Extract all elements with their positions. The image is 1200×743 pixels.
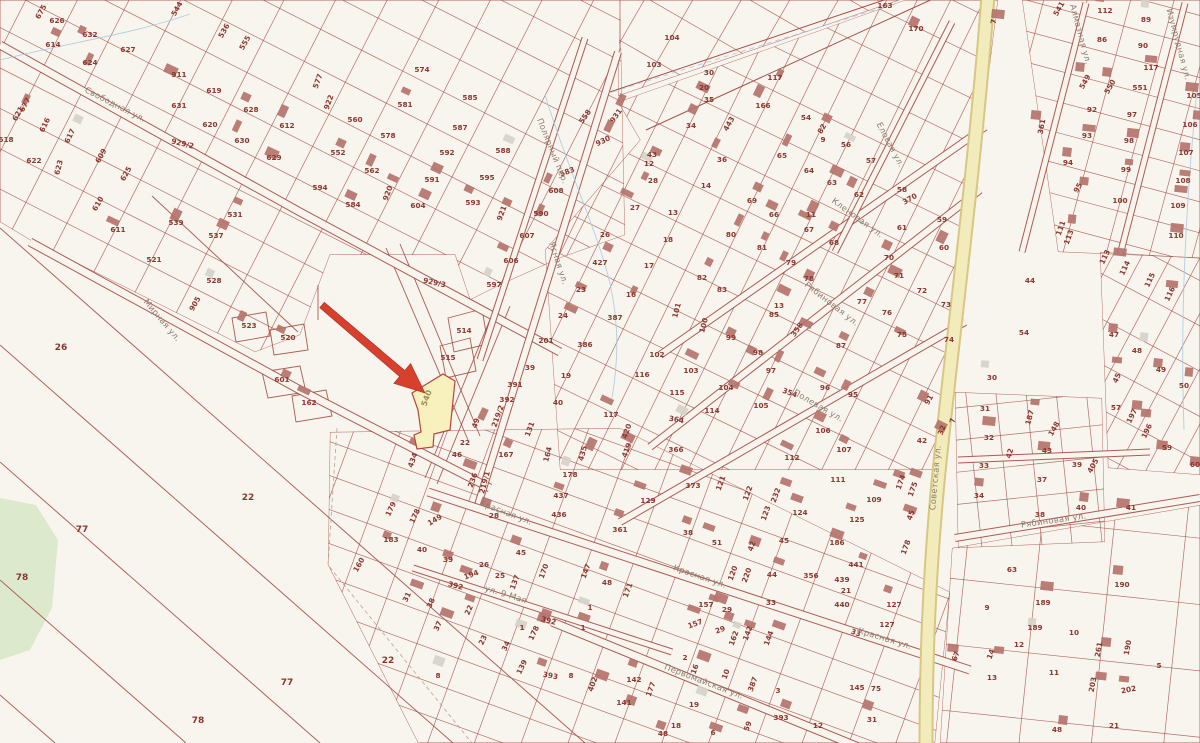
parcel-label: 201 (538, 336, 553, 345)
parcel-label: 551 (1132, 83, 1147, 92)
parcel-label: 27 (630, 203, 640, 212)
rural-parcel-label: 77 (281, 678, 294, 688)
parcel-label: 13 (987, 673, 997, 682)
parcel-label: 366 (668, 445, 683, 454)
parcel-label: 552 (330, 148, 345, 157)
parcel-label: 46 (452, 450, 462, 459)
parcel-label: 520 (280, 333, 295, 342)
parcel-label: 601 (274, 375, 289, 384)
parcel-label: 108 (1175, 176, 1190, 185)
parcel-label: 62 (854, 190, 864, 199)
parcel-label: 75 (871, 684, 881, 693)
parcel-label: 604 (410, 201, 425, 210)
parcel-label: 64 (804, 166, 814, 175)
parcel-label: 98 (1124, 136, 1134, 145)
parcel-label: 167 (498, 450, 513, 459)
parcel-label: 115 (669, 388, 684, 397)
parcel-label: 361 (612, 525, 627, 534)
parcel-label: 393 (773, 713, 788, 722)
parcel-label: 112 (784, 453, 799, 462)
parcel-label: 19 (561, 371, 571, 380)
parcel-label: 99 (1121, 165, 1131, 174)
parcel-label: 40 (553, 398, 563, 407)
parcel-label: 20 (699, 83, 709, 92)
parcel-label: 70 (884, 253, 894, 262)
parcel-label: 50 (1179, 381, 1189, 390)
parcel-label: 628 (243, 105, 258, 114)
parcel-label: 539 (168, 218, 183, 227)
parcel-label: 440 (834, 600, 849, 609)
parcel-label: 107 (836, 445, 851, 454)
parcel-label: 124 (792, 508, 807, 517)
parcel-label: 608 (548, 186, 563, 195)
parcel-label: 170 (908, 24, 923, 33)
parcel-label: 141 (616, 698, 631, 707)
parcel-label: 56 (841, 140, 851, 149)
parcel-label: 523 (241, 321, 256, 330)
parcel-label: 71 (894, 271, 904, 280)
parcel-label: 13 (774, 301, 784, 310)
parcel-label: 13 (668, 208, 678, 217)
parcel-label: 515 (440, 353, 455, 362)
parcel-label: 98 (753, 348, 763, 357)
parcel-label: 11 (806, 210, 816, 219)
parcel-label: 127 (879, 620, 894, 629)
parcel-label: 51 (712, 538, 722, 547)
parcel-label: 80 (726, 230, 736, 239)
parcel-label: 592 (439, 148, 454, 157)
parcel-label: 31 (980, 404, 990, 413)
parcel-label: 178 (562, 470, 577, 479)
parcel-label: 190 (1114, 580, 1129, 589)
parcel-label: 439 (834, 575, 849, 584)
parcel-label: 66 (769, 210, 779, 219)
parcel-label: 96 (820, 383, 830, 392)
parcel-label: 68 (829, 238, 839, 247)
parcel-label: 619 (206, 86, 221, 95)
parcel-label: 145 (849, 683, 864, 692)
parcel-label: 186 (829, 538, 844, 547)
parcel-label: 537 (208, 231, 223, 240)
parcel-label: 620 (202, 120, 217, 129)
parcel-label: 514 (456, 326, 471, 335)
parcel-label: 392 (499, 395, 514, 404)
parcel-label: 6 (710, 728, 715, 737)
parcel-label: 387 (607, 313, 622, 322)
parcel-label: 110 (1168, 231, 1183, 240)
parcel-label: 26 (600, 230, 610, 239)
parcel-label: 18 (663, 235, 673, 244)
parcel-label: 630 (234, 136, 249, 145)
parcel-label: 9 (984, 603, 989, 612)
parcel-label: 1 (587, 603, 592, 612)
parcel-label: 588 (495, 146, 510, 155)
parcel-label: 48 (1052, 725, 1062, 734)
parcel-label: 83 (717, 285, 727, 294)
parcel-label: 19 (689, 700, 699, 709)
rural-parcel-label: 22 (242, 493, 255, 503)
parcel-label: 73 (941, 300, 951, 309)
parcel-label: 89 (1141, 15, 1151, 24)
parcel-label: 591 (424, 175, 439, 184)
parcel-label: 595 (479, 173, 494, 182)
parcel-label: 21 (1109, 721, 1119, 730)
rural-parcel-label: 22 (382, 656, 395, 666)
parcel-label: 39 (443, 555, 453, 564)
rural-parcel-label: 78 (16, 573, 29, 583)
parcel-label: 622 (26, 156, 41, 165)
parcel-label: 574 (414, 65, 429, 74)
parcel-label: 127 (886, 600, 901, 609)
parcel-label: 21 (841, 586, 851, 595)
parcel-label: 562 (364, 166, 379, 175)
parcel-label: 34 (686, 121, 696, 130)
parcel-label: 528 (206, 276, 221, 285)
parcel-label: 437 (553, 491, 568, 500)
parcel-label: 44 (767, 570, 777, 579)
parcel-label: 25 (495, 571, 505, 580)
parcel-label: 3 (775, 686, 780, 695)
parcel-label: 1 (519, 623, 524, 632)
parcel-label: 597 (486, 280, 501, 289)
parcel-label: 74 (944, 335, 954, 344)
parcel-label: 117 (603, 410, 618, 419)
parcel-label: 105 (1186, 91, 1200, 100)
parcel-label: 32 (984, 433, 994, 442)
parcel-label: 531 (227, 210, 242, 219)
parcel-label: 30 (704, 68, 714, 77)
parcel-label: 82 (697, 273, 707, 282)
parcel-label: 79 (786, 258, 796, 267)
parcel-label: 594 (312, 183, 327, 192)
parcel-label: 76 (882, 308, 892, 317)
parcel-label: 49 (1156, 365, 1166, 374)
parcel-label: 59 (937, 215, 947, 224)
parcel-label: 37 (1037, 475, 1047, 484)
parcel-label: 166 (755, 101, 770, 110)
parcel-label: 106 (815, 426, 830, 435)
parcel-label: 31 (867, 715, 877, 724)
rural-parcel-label: 78 (192, 716, 205, 726)
parcel-label: 116 (634, 370, 649, 379)
parcel-label: 26 (479, 560, 489, 569)
parcel-label: 107 (1178, 148, 1193, 157)
parcel-label: 87 (836, 341, 846, 350)
parcel-label: 95 (848, 390, 858, 399)
parcel-label: 163 (877, 1, 892, 10)
parcel-label: 75 (897, 330, 907, 339)
parcel-label: 189 (1035, 598, 1050, 607)
parcel-label: 106 (1182, 120, 1197, 129)
parcel-label: 41 (1126, 503, 1136, 512)
parcel-label: 48 (658, 729, 668, 738)
parcel-label: 77 (857, 297, 867, 306)
parcel-label: 10 (1069, 628, 1079, 637)
parcel-label: 102 (649, 350, 664, 359)
parcel-label: 104 (664, 33, 679, 42)
parcel-label: 12 (644, 159, 654, 168)
parcel-label: 67 (804, 225, 814, 234)
parcel-label: 42 (917, 436, 927, 445)
parcel-label: 69 (747, 196, 757, 205)
parcel-label: 97 (1127, 110, 1137, 119)
parcel-label: 35 (704, 95, 714, 104)
parcel-label: 33 (766, 598, 776, 607)
parcel-label: 109 (1170, 201, 1185, 210)
parcel-label: 521 (146, 255, 161, 264)
parcel-label: 65 (777, 151, 787, 160)
parcel-label: 373 (685, 481, 700, 490)
parcel-label: 58 (897, 185, 907, 194)
parcel-label: 391 (507, 380, 522, 389)
parcel-label: 29 (722, 605, 732, 614)
parcel-label: 114 (704, 406, 719, 415)
parcel-label: 90 (1138, 41, 1148, 50)
parcel-label: 44 (1025, 276, 1035, 285)
parcel-label: 18 (671, 721, 681, 730)
parcel-label: 2 (682, 653, 687, 662)
parcel-label: 22 (460, 438, 470, 447)
parcel-label: 12 (1014, 640, 1024, 649)
parcel-label: 9 (820, 135, 825, 144)
parcel-label: 24 (558, 311, 568, 320)
parcel-label: 16 (626, 290, 636, 299)
parcel-label: 386 (577, 340, 592, 349)
parcel-label: 112 (1097, 6, 1112, 15)
rural-parcel-label: 26 (55, 343, 68, 353)
parcel-label: 104 (718, 383, 733, 392)
parcel-label: 28 (648, 176, 658, 185)
parcel-label: 40 (417, 545, 427, 554)
parcel-label: 624 (82, 58, 97, 67)
parcel-label: 99 (726, 333, 736, 342)
parcel-label: 61 (897, 223, 907, 232)
parcel-label: 427 (592, 258, 607, 267)
parcel-label: 72 (917, 286, 927, 295)
parcel-label: 63 (827, 178, 837, 187)
parcel-label: 629 (266, 153, 281, 162)
parcel-label: 8 (568, 671, 573, 680)
parcel-label: 611 (110, 225, 125, 234)
parcel-label: 54 (801, 113, 811, 122)
parcel-label: 43 (647, 150, 657, 159)
parcel-label: 129 (640, 496, 655, 505)
parcel-label: 59 (1162, 443, 1172, 452)
parcel-label: 105 (753, 401, 768, 410)
parcel-label: 97 (766, 366, 776, 375)
parcel-label: 618 (0, 135, 14, 144)
parcel-label: 5 (1156, 661, 1161, 670)
parcel-label: 162 (301, 398, 316, 407)
parcel-label: 626 (49, 16, 64, 25)
parcel-label: 436 (551, 510, 566, 519)
parcel-label: 45 (779, 536, 789, 545)
cadastral-map[interactable]: 540 675626632614627624911619631628620612… (0, 0, 1200, 743)
cadastral-map-viewport[interactable]: 540 675626632614627624911619631628620612… (0, 0, 1200, 743)
parcel-label: 578 (380, 131, 395, 140)
parcel-label: 30 (987, 373, 997, 382)
parcel-label: 57 (1111, 403, 1121, 412)
parcel-label: 39 (1072, 460, 1082, 469)
parcel-label: 125 (849, 515, 864, 524)
parcel-label: 100 (1112, 196, 1127, 205)
parcel-label: 92 (1087, 105, 1097, 114)
parcel-label: 34 (974, 491, 984, 500)
parcel-label: 590 (533, 209, 548, 218)
parcel-label: 593 (465, 198, 480, 207)
parcel-label: 60 (939, 243, 949, 252)
parcel-label: 38 (683, 528, 693, 537)
parcel-label: 12 (813, 721, 823, 730)
parcel-label: 631 (171, 101, 186, 110)
parcel-label: 23 (576, 285, 586, 294)
rural-parcel-label: 77 (76, 525, 89, 535)
parcel-label: 81 (757, 243, 767, 252)
parcel-label: 111 (830, 475, 845, 484)
parcel-label: 48 (1132, 346, 1142, 355)
parcel-label: 86 (1097, 35, 1107, 44)
parcel-label: 157 (698, 600, 713, 609)
parcel-label: 441 (848, 560, 863, 569)
parcel-label: 606 (503, 256, 518, 265)
parcel-label: 911 (171, 70, 186, 79)
parcel-label: 607 (519, 231, 534, 240)
parcel-label: 85 (769, 310, 779, 319)
parcel-label: 103 (646, 60, 661, 69)
parcel-label: 48 (602, 578, 612, 587)
parcel-label: 581 (397, 100, 412, 109)
parcel-label: 612 (279, 121, 294, 130)
parcel-label: 54 (1019, 328, 1029, 337)
parcel-label: 11 (1049, 668, 1059, 677)
parcel-label: 93 (1082, 131, 1092, 140)
parcel-label: 109 (866, 495, 881, 504)
parcel-label: 45 (516, 548, 526, 557)
parcel-label: 36 (717, 155, 727, 164)
parcel-label: 1 (580, 623, 585, 632)
parcel-label: 632 (82, 30, 97, 39)
parcel-label: 142 (626, 675, 641, 684)
parcel-label: 8 (435, 671, 440, 680)
parcel-label: 14 (701, 181, 711, 190)
parcel-label: 103 (683, 366, 698, 375)
parcel-label: 560 (347, 115, 362, 124)
parcel-label: 585 (462, 93, 477, 102)
parcel-label: 117 (1143, 63, 1158, 72)
parcel-label: 587 (452, 123, 467, 132)
parcel-label: 47 (1109, 330, 1119, 339)
parcel-label: 60 (1190, 460, 1200, 469)
parcel-label: 63 (1007, 565, 1017, 574)
parcel-label: 117 (767, 73, 782, 82)
parcel-label: 39 (525, 363, 535, 372)
parcel-label: 183 (383, 535, 398, 544)
parcel-label: 94 (1063, 158, 1073, 167)
parcel-label: 43 (1042, 446, 1052, 455)
parcel-label: 189 (1027, 623, 1042, 632)
parcel-label: 627 (120, 45, 135, 54)
parcel-label: 584 (345, 200, 360, 209)
parcel-label: 57 (866, 156, 876, 165)
parcel-label: 614 (45, 40, 60, 49)
parcel-label: 17 (644, 261, 654, 270)
parcel-label: 356 (803, 571, 818, 580)
parcel-label: 33 (979, 461, 989, 470)
